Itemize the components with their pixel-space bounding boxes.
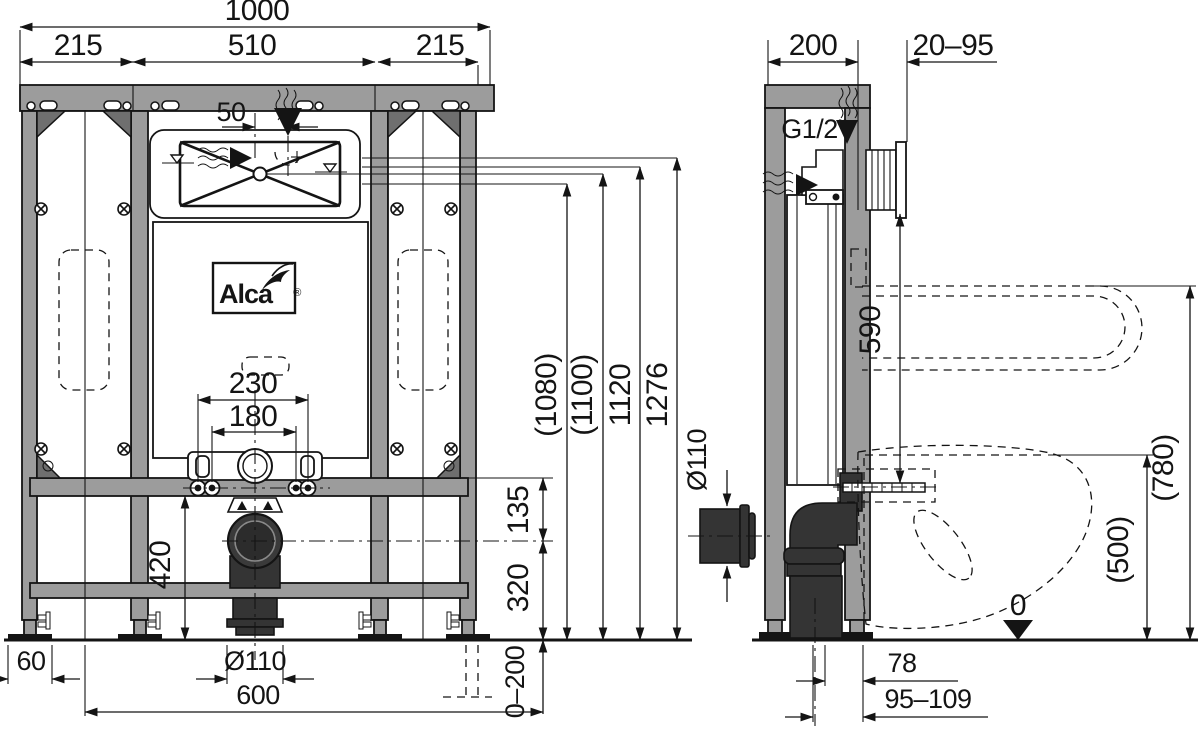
- dim-label-180: 180: [229, 400, 278, 433]
- dim-label-60: 60: [16, 646, 45, 676]
- datum-label: 0: [1010, 589, 1026, 622]
- front-dims-top: 1000 215 510 215: [20, 0, 490, 85]
- dim-label-200: 200: [789, 29, 838, 62]
- dim-label-1276: 1276: [641, 363, 674, 428]
- dim-label-590: 590: [854, 306, 887, 355]
- toilet-bowl-outline: [838, 445, 1092, 628]
- dim-label-1120: 1120: [604, 364, 637, 427]
- dim-label-dia110-front: Ø110: [224, 646, 286, 676]
- dim-label-1080: (1080): [530, 353, 563, 437]
- side-view: G1/2": [682, 29, 1198, 726]
- drain-downpipe-side: [790, 576, 842, 638]
- dim-label-230: 230: [229, 367, 278, 400]
- dim-label-420: 420: [144, 541, 177, 590]
- extended-foot-dashed: [443, 645, 492, 697]
- dim-label-215-left: 215: [54, 29, 103, 62]
- dim-label-0-200: 0–200: [500, 646, 530, 719]
- thread-label: G1/2": [781, 114, 847, 144]
- left-mounting-panel: [37, 111, 131, 478]
- dim-label-dia110-side: Ø110: [682, 429, 712, 491]
- flush-pipe-corrugated: [866, 142, 906, 218]
- top-rail: [20, 85, 494, 111]
- dim-label-20-95: 20–95: [913, 29, 994, 62]
- bowl-opening-outline: [904, 501, 983, 588]
- right-mounting-panel: [388, 111, 460, 478]
- front-view: Alca ®: [0, 0, 692, 718]
- grab-rail-outline: [851, 249, 1142, 370]
- dim-label-510: 510: [228, 29, 277, 62]
- brand-name: Alca: [219, 279, 274, 309]
- dim-label-600: 600: [236, 680, 280, 710]
- dim-label-1100: (1100): [566, 354, 599, 436]
- dim-label-320: 320: [502, 564, 535, 613]
- post-right-inner: [371, 111, 388, 620]
- registered-mark: ®: [293, 287, 301, 299]
- dim-label-215-right: 215: [416, 29, 465, 62]
- bowl-fixing-rod: [833, 483, 938, 492]
- cistern-side: [787, 195, 843, 485]
- technical-drawing-canvas: Alca ®: [0, 0, 1200, 731]
- datum-triangle-icon: [1003, 620, 1033, 640]
- dim-label-135: 135: [502, 486, 535, 535]
- dim-label-780: (780): [1147, 434, 1180, 502]
- dim-label-1000: 1000: [225, 0, 290, 27]
- dim-label-500: (500): [1102, 516, 1135, 584]
- side-top-rail: [765, 85, 870, 108]
- front-cistern: Alca ®: [153, 222, 368, 496]
- installation-frame-drawing: Alca ®: [0, 0, 1200, 731]
- post-right-outer: [460, 111, 476, 620]
- outlet-connector: Ø110: [682, 429, 772, 602]
- brand-logo: Alca ®: [213, 263, 301, 313]
- post-left-outer: [22, 111, 37, 620]
- dim-label-95-109: 95–109: [884, 684, 971, 714]
- front-dims-bottom: 60 Ø110 600 0–200: [0, 640, 543, 718]
- dim-label-78: 78: [887, 648, 916, 678]
- dim-label-50: 50: [216, 97, 245, 127]
